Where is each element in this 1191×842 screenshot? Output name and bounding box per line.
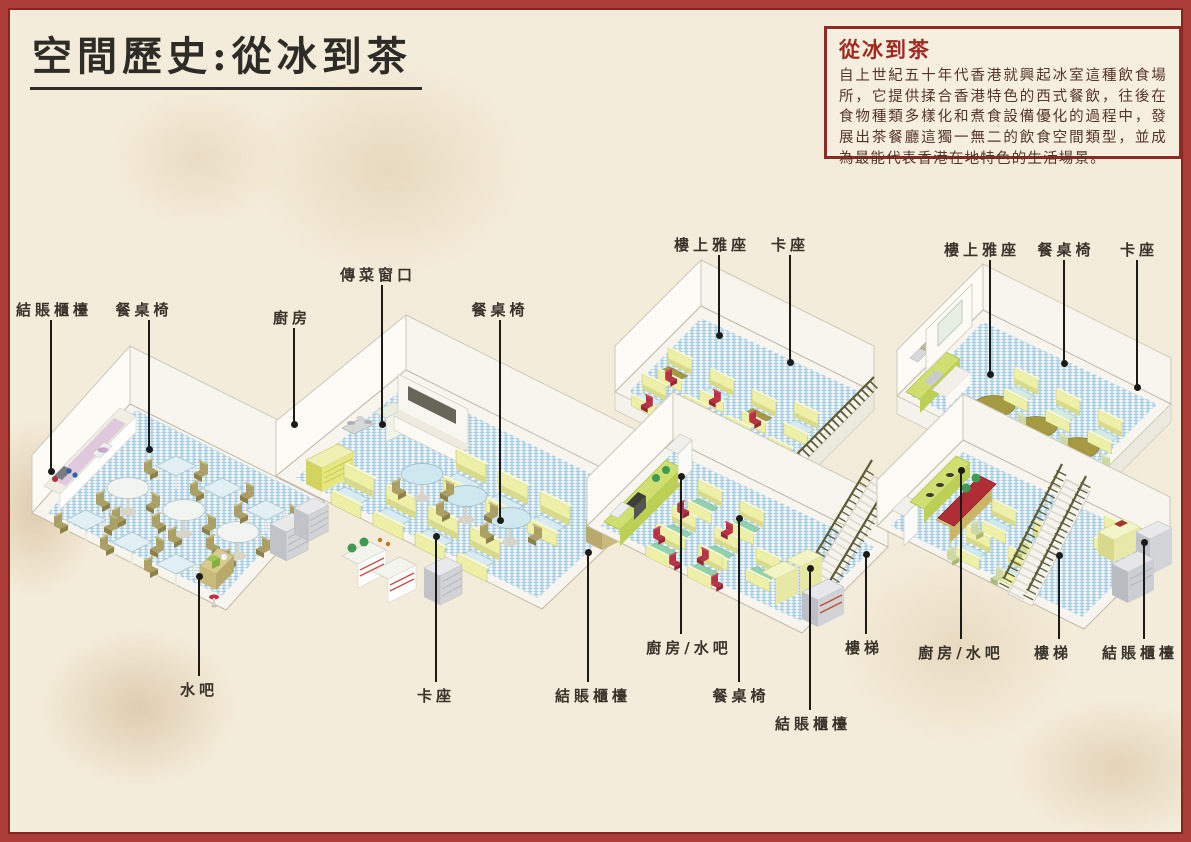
leader-dot [1141,539,1148,546]
page-title: 空間歷史:從冰到茶 [30,24,422,90]
intro-title: 從冰到茶 [839,34,1167,64]
leader-dot [146,446,153,453]
leader-line [960,473,962,639]
label-dining-tables-1: 餐桌椅 [115,299,172,320]
label-kitchen-bar-4: 廚房/水吧 [918,642,1003,663]
leader-line [148,320,150,448]
leader-line [865,557,867,634]
leader-dot [807,565,814,572]
leader-dot [678,473,685,480]
leader-dot [863,551,870,558]
diagram-two-storey-a [587,260,894,633]
label-serving-window-2: 傳菜窗口 [340,264,416,285]
leader-line [738,521,740,682]
leader-line [198,579,200,676]
label-water-bar-1: 水吧 [180,679,218,700]
leader-line [1143,545,1145,639]
label-booth-3: 卡座 [771,234,809,255]
label-checkout-counter-2: 結賬櫃檯 [555,685,631,706]
diagram-two-storey-b [877,264,1172,629]
leader-dot [1056,552,1063,559]
leader-line [499,320,501,518]
leader-line [1136,260,1138,386]
leader-line [680,479,682,634]
label-dining-tables-2: 餐桌椅 [471,299,528,320]
leader-line [1058,558,1060,639]
leader-dot [291,421,298,428]
leader-dot [1061,360,1068,367]
intro-text-box: 從冰到茶 自上世紀五十年代香港就興起冰室這種飲食場所，它提供揉合香港特色的西式餐… [824,26,1182,159]
label-checkout-counter-3: 結賬櫃檯 [775,713,851,734]
leader-line [293,328,295,422]
leader-line [718,255,720,334]
label-stairs-4: 樓梯 [1034,642,1072,663]
leader-dot [736,515,743,522]
leader-dot [958,467,965,474]
label-kitchen-2: 廚房 [273,307,311,328]
intro-body: 自上世紀五十年代香港就興起冰室這種飲食場所，它提供揉合香港特色的西式餐飲，往後在… [839,66,1167,170]
leader-line [809,571,811,710]
leader-dot [787,359,794,366]
label-upstairs-seating-4: 樓上雅座 [944,239,1020,260]
label-kitchen-bar-3: 廚房/水吧 [646,637,731,658]
leader-line [1063,260,1065,362]
leader-line [435,539,437,682]
leader-dot [497,517,504,524]
poster-page: 空間歷史:從冰到茶 從冰到茶 自上世紀五十年代香港就興起冰室這種飲食場所，它提供… [0,0,1191,842]
leader-line [989,260,991,373]
label-checkout-counter-1: 結賬櫃檯 [16,299,92,320]
label-dining-tables-4: 餐桌椅 [1037,239,1094,260]
label-dining-tables-3: 餐桌椅 [712,685,769,706]
leader-dot [196,573,203,580]
leader-dot [379,421,386,428]
leader-dot [48,468,55,475]
leader-line [50,320,52,471]
label-checkout-counter-4: 結賬櫃檯 [1102,642,1178,663]
leader-dot [433,533,440,540]
leader-dot [987,371,994,378]
leader-line [381,285,383,422]
label-booth-4: 卡座 [1120,239,1158,260]
label-booth-2: 卡座 [417,685,455,706]
leader-dot [716,332,723,339]
leader-line [789,255,791,361]
leader-dot [585,549,592,556]
leader-dot [1134,384,1141,391]
label-upstairs-seating-3: 樓上雅座 [674,234,750,255]
label-stairs-3: 樓梯 [845,637,883,658]
leader-line [587,555,589,682]
